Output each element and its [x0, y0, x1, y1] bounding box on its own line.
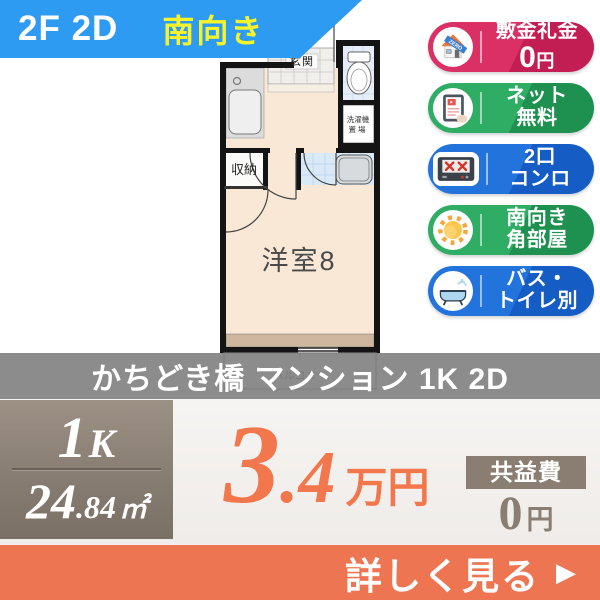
badge-line1: 2口 — [492, 147, 588, 169]
badge-south-corner: 南向き 角部屋 — [428, 205, 594, 255]
tablet-icon — [433, 88, 473, 128]
window-sill — [226, 334, 374, 347]
badge-line1: ネット — [486, 86, 588, 108]
facing-label: 南向き — [162, 6, 264, 52]
property-title: かちどき橋 マンション 1K 2D — [91, 354, 509, 398]
price-decimal: .4 — [280, 441, 336, 515]
info-strip: 1 K 24 .84 ㎡ 3 .4 万円 共益費 0 円 — [0, 399, 600, 545]
badge-line2: 角部屋 — [486, 230, 588, 252]
spec-box: 1 K 24 .84 ㎡ — [0, 400, 173, 539]
see-details-button[interactable]: 詳しく見る ▶ — [0, 545, 600, 600]
kitchen-area — [226, 68, 264, 138]
badge-line1: バス・ — [486, 269, 588, 291]
laundry-label-line1: 洗濯機 — [347, 114, 370, 124]
badge-line1: 南向き — [486, 208, 588, 230]
property-title-banner: かちどき橋 マンション 1K 2D — [0, 353, 600, 399]
layout-number: 1 — [58, 404, 87, 471]
balcony-window — [298, 348, 338, 351]
badge-divider — [480, 214, 482, 246]
badge-line2: 無料 — [486, 108, 588, 130]
see-details-label: 詳しく見る — [345, 546, 540, 600]
arrow-right-icon: ▶ — [556, 557, 576, 588]
badge-yen: 円 — [536, 51, 555, 71]
common-fee: 共益費 0 円 — [466, 456, 586, 538]
laundry-label-line2: 置場 — [349, 124, 368, 134]
bathtub-icon — [433, 271, 473, 311]
kitchen-sink — [229, 90, 261, 134]
badge-divider — [480, 31, 482, 63]
laundry-area — [343, 105, 374, 143]
bath-area — [301, 153, 374, 185]
common-fee-label: 共益費 — [466, 456, 586, 489]
stove-icon — [433, 152, 479, 186]
listing-card[interactable]: 玄関 収納 洋室8 洗濯機 置場 バルコニー 2F 2D 南向き ZERO — [0, 0, 600, 600]
badge-net-free: ネット 無料 — [428, 83, 594, 133]
badge-two-burner: 2口 コンロ — [428, 144, 594, 194]
house-zero-icon: ZERO — [433, 27, 473, 67]
storage-label: 収納 — [231, 162, 257, 177]
room-label: 洋室8 — [261, 246, 336, 276]
common-fee-unit: 円 — [527, 498, 554, 537]
badge-deposit-zero: ZERO 敷金礼金 0円 — [428, 22, 594, 72]
badge-divider — [480, 275, 482, 307]
badge-divider — [486, 153, 488, 185]
area-unit: ㎡ — [119, 487, 147, 527]
price-integer: 3 — [224, 409, 280, 521]
badge-zero: 0 — [519, 41, 536, 74]
badge-line1: 敷金礼金 — [486, 21, 588, 43]
badge-divider — [480, 92, 482, 124]
toilet-area — [343, 46, 374, 100]
floorplan: 玄関 収納 洋室8 洗濯機 置場 バルコニー — [195, 5, 405, 400]
area-decimal: .84 — [76, 489, 116, 526]
feature-badges: ZERO 敷金礼金 0円 — [428, 22, 594, 327]
badge-bath-toilet-separate: バス・ トイレ別 — [428, 266, 594, 316]
badge-line2: トイレ別 — [486, 291, 588, 313]
ribbon-banner: 2F 2D 南向き — [0, 0, 362, 58]
area-integer: 24 — [26, 472, 76, 530]
sun-icon — [433, 210, 473, 250]
price-unit: 万円 — [346, 454, 430, 515]
common-fee-value: 0 — [499, 490, 523, 538]
bathtub — [336, 155, 372, 184]
layout-letter: K — [89, 420, 116, 467]
badge-line2: コンロ — [492, 169, 588, 191]
rent-price: 3 .4 万円 — [224, 409, 430, 521]
floor-unit-label: 2F 2D — [18, 9, 118, 49]
